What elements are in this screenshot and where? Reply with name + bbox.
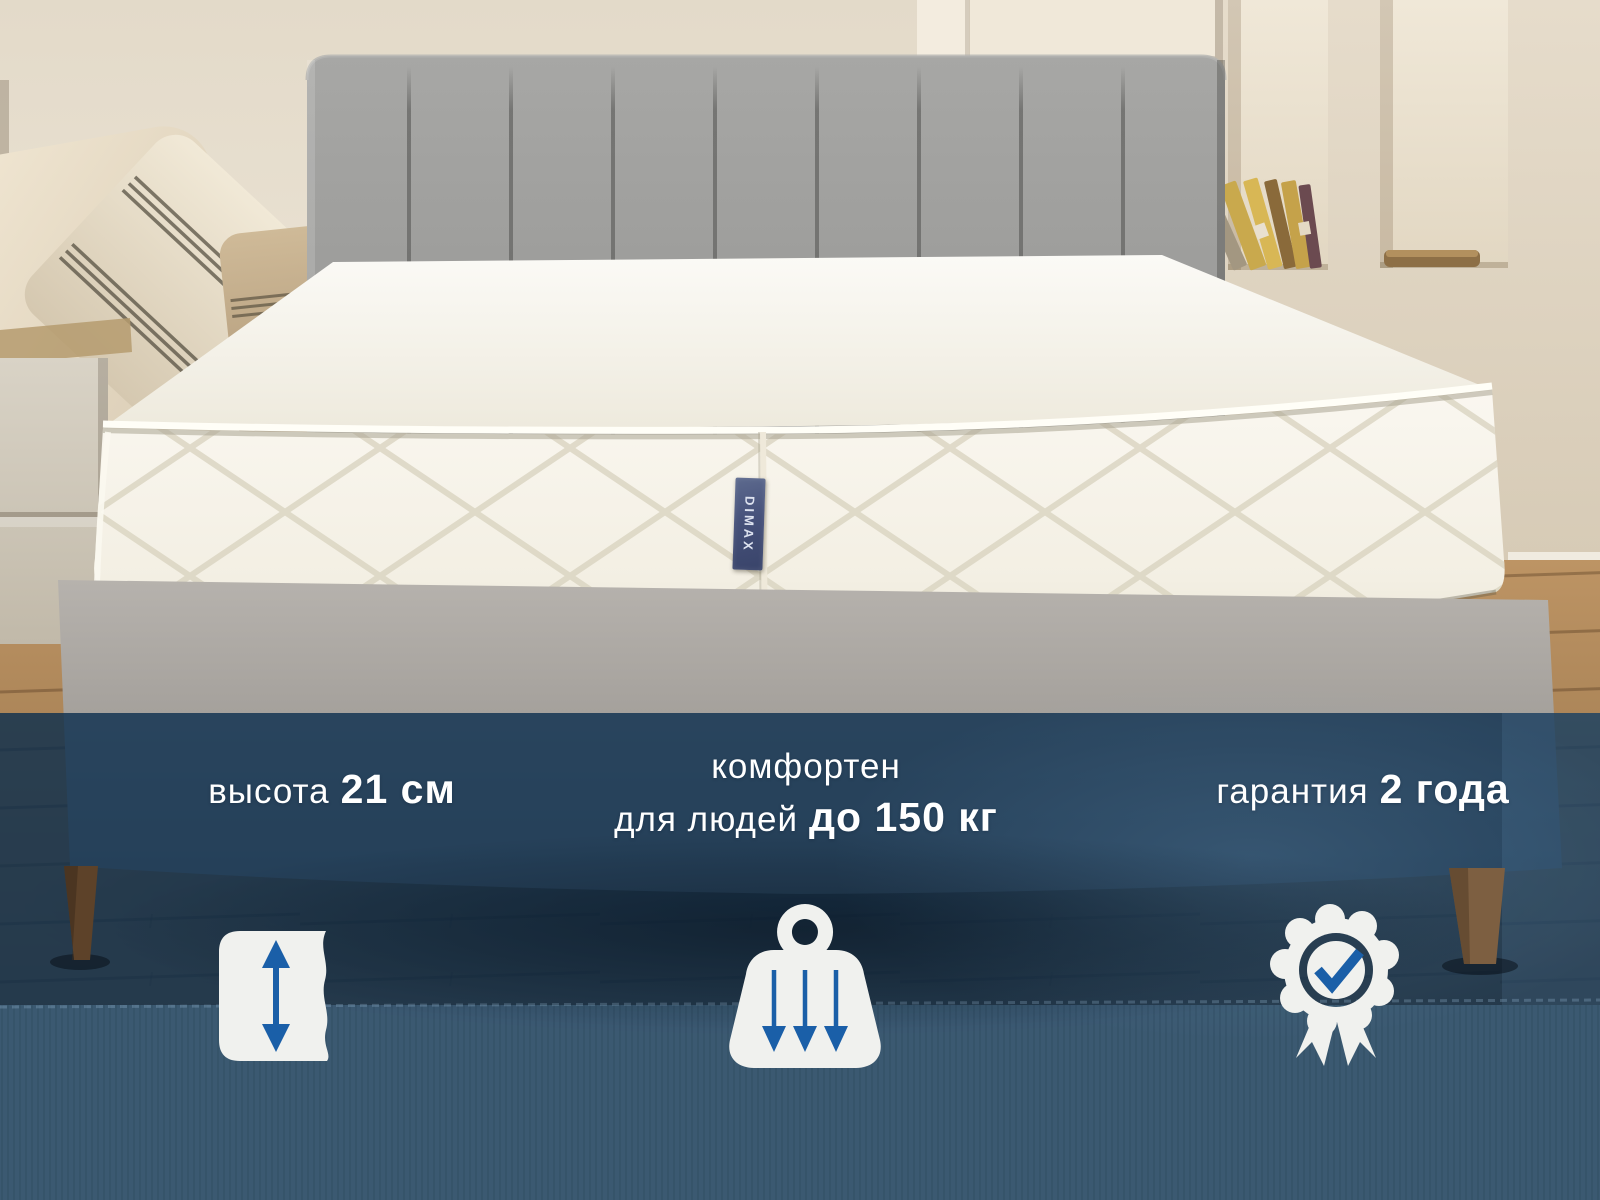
weight-capacity-icon [722, 900, 888, 1070]
feature-warranty-text: гарантия [1216, 772, 1368, 811]
feature-weight-label: комфортен для людейдо 150 кг [546, 742, 1066, 845]
feature-height-value: 21 см [341, 766, 456, 812]
wall-opening [955, 0, 1228, 58]
mattress-brand-tag: DIMAX [732, 478, 765, 571]
mattress-height-icon [214, 928, 336, 1064]
feature-weight-line2: для людей [614, 800, 798, 839]
feature-height-label: высота21 см [72, 764, 592, 817]
warranty-badge-icon [1262, 898, 1410, 1070]
feature-warranty-value: 2 года [1380, 766, 1510, 812]
feature-height-text: высота [208, 772, 329, 811]
feature-weight-line1: комфортен [546, 742, 1066, 792]
wood-slice [1384, 250, 1480, 267]
wall-niche [1380, 0, 1508, 268]
product-image: DIMAX высота21 см комфортен для людейдо … [0, 0, 1600, 1200]
feature-weight-value: до 150 кг [809, 794, 998, 840]
feature-warranty-label: гарантия2 года [1103, 764, 1600, 817]
